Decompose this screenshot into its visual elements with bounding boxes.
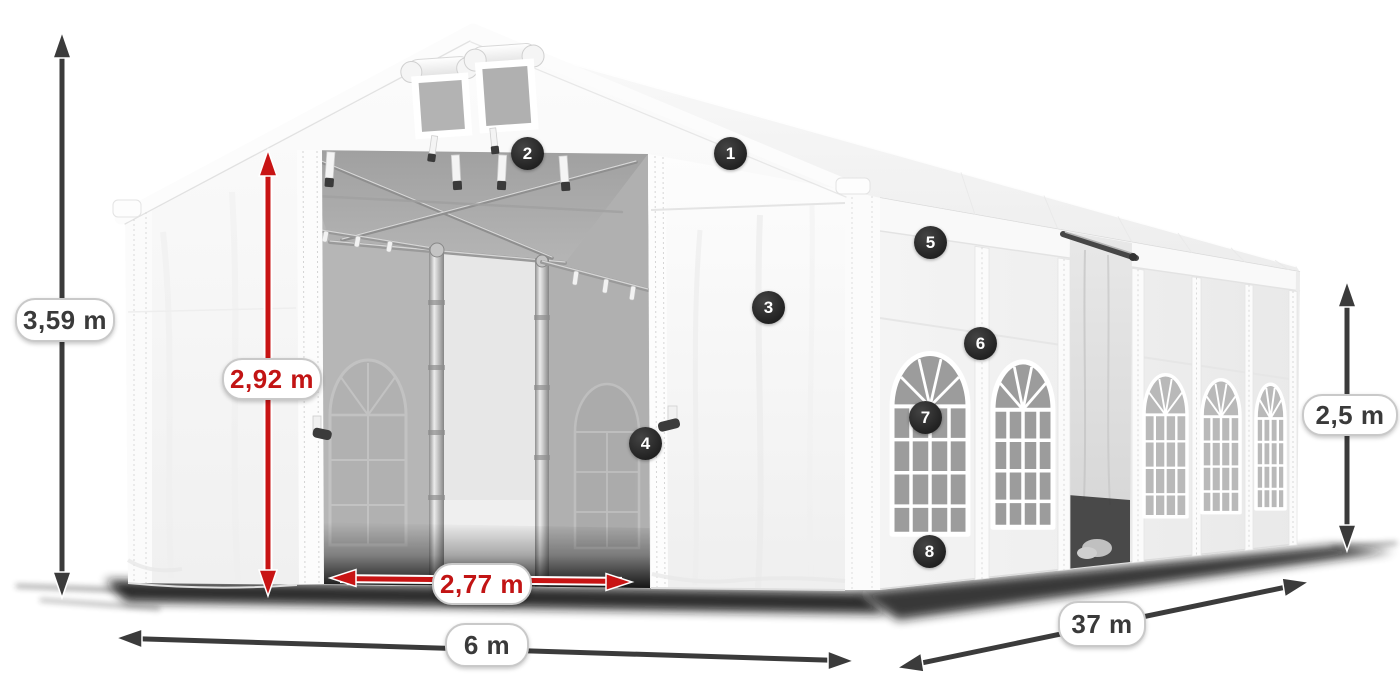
- callout-badge-1: 1: [714, 137, 747, 170]
- entrance-height-label: 2,92 m: [222, 358, 322, 400]
- callout-badge-7: 7: [909, 401, 942, 434]
- callout-badge-2: 2: [511, 137, 544, 170]
- right-door-flap: [648, 154, 845, 590]
- total-height-label: 3,59 m: [15, 298, 115, 342]
- side-length-label: 37 m: [1058, 601, 1146, 647]
- front-right-corner: [845, 190, 880, 590]
- tent-illustration: [0, 0, 1400, 700]
- front-width-label: 6 m: [445, 623, 529, 667]
- callout-badge-6: 6: [964, 327, 997, 360]
- arched-window: [1256, 384, 1285, 509]
- callout-badge-8: 8: [913, 535, 946, 568]
- product-diagram: 3,59 m 2,92 m 2,77 m 6 m 37 m 2,5 m 1 2 …: [0, 0, 1400, 700]
- side-doorway: [1063, 232, 1137, 569]
- interior-window-left: [330, 360, 406, 545]
- entrance-width-label: 2,77 m: [432, 563, 532, 605]
- callout-badge-4: 4: [629, 427, 662, 460]
- arched-window: [1202, 380, 1240, 513]
- callout-badge-3: 3: [752, 291, 785, 324]
- arched-window: [1144, 375, 1187, 517]
- arched-window: [993, 362, 1053, 527]
- entrance-interior: [300, 149, 651, 589]
- side-height-label: 2,5 m: [1302, 394, 1398, 436]
- interior-window-right: [575, 384, 639, 548]
- callout-badge-5: 5: [914, 226, 947, 259]
- arched-window: [892, 354, 968, 535]
